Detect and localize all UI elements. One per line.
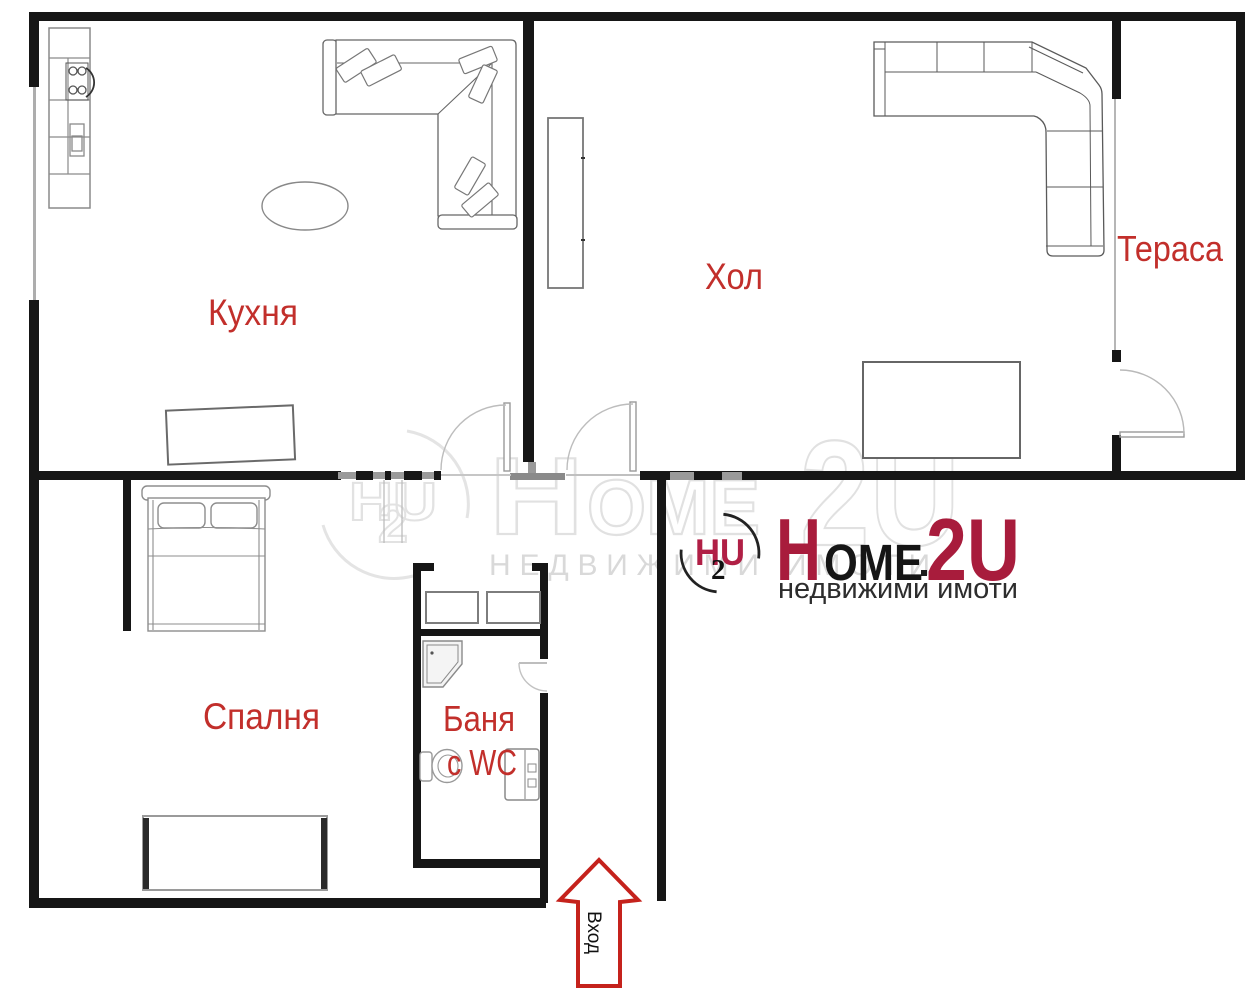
svg-text:H: H (489, 435, 584, 558)
svg-text:Тераса: Тераса (1117, 228, 1224, 269)
svg-text:Вход: Вход (583, 911, 604, 954)
svg-text:Кухня: Кухня (208, 292, 298, 333)
svg-text:недвижими имоти: недвижими имоти (778, 573, 1018, 605)
svg-text:2: 2 (711, 554, 726, 586)
svg-text:Спалня: Спалня (203, 696, 320, 737)
svg-text:с WC: с WC (447, 742, 517, 783)
svg-text:Баня: Баня (443, 698, 515, 739)
svg-text:Хол: Хол (705, 256, 763, 297)
svg-text:2: 2 (378, 494, 408, 554)
